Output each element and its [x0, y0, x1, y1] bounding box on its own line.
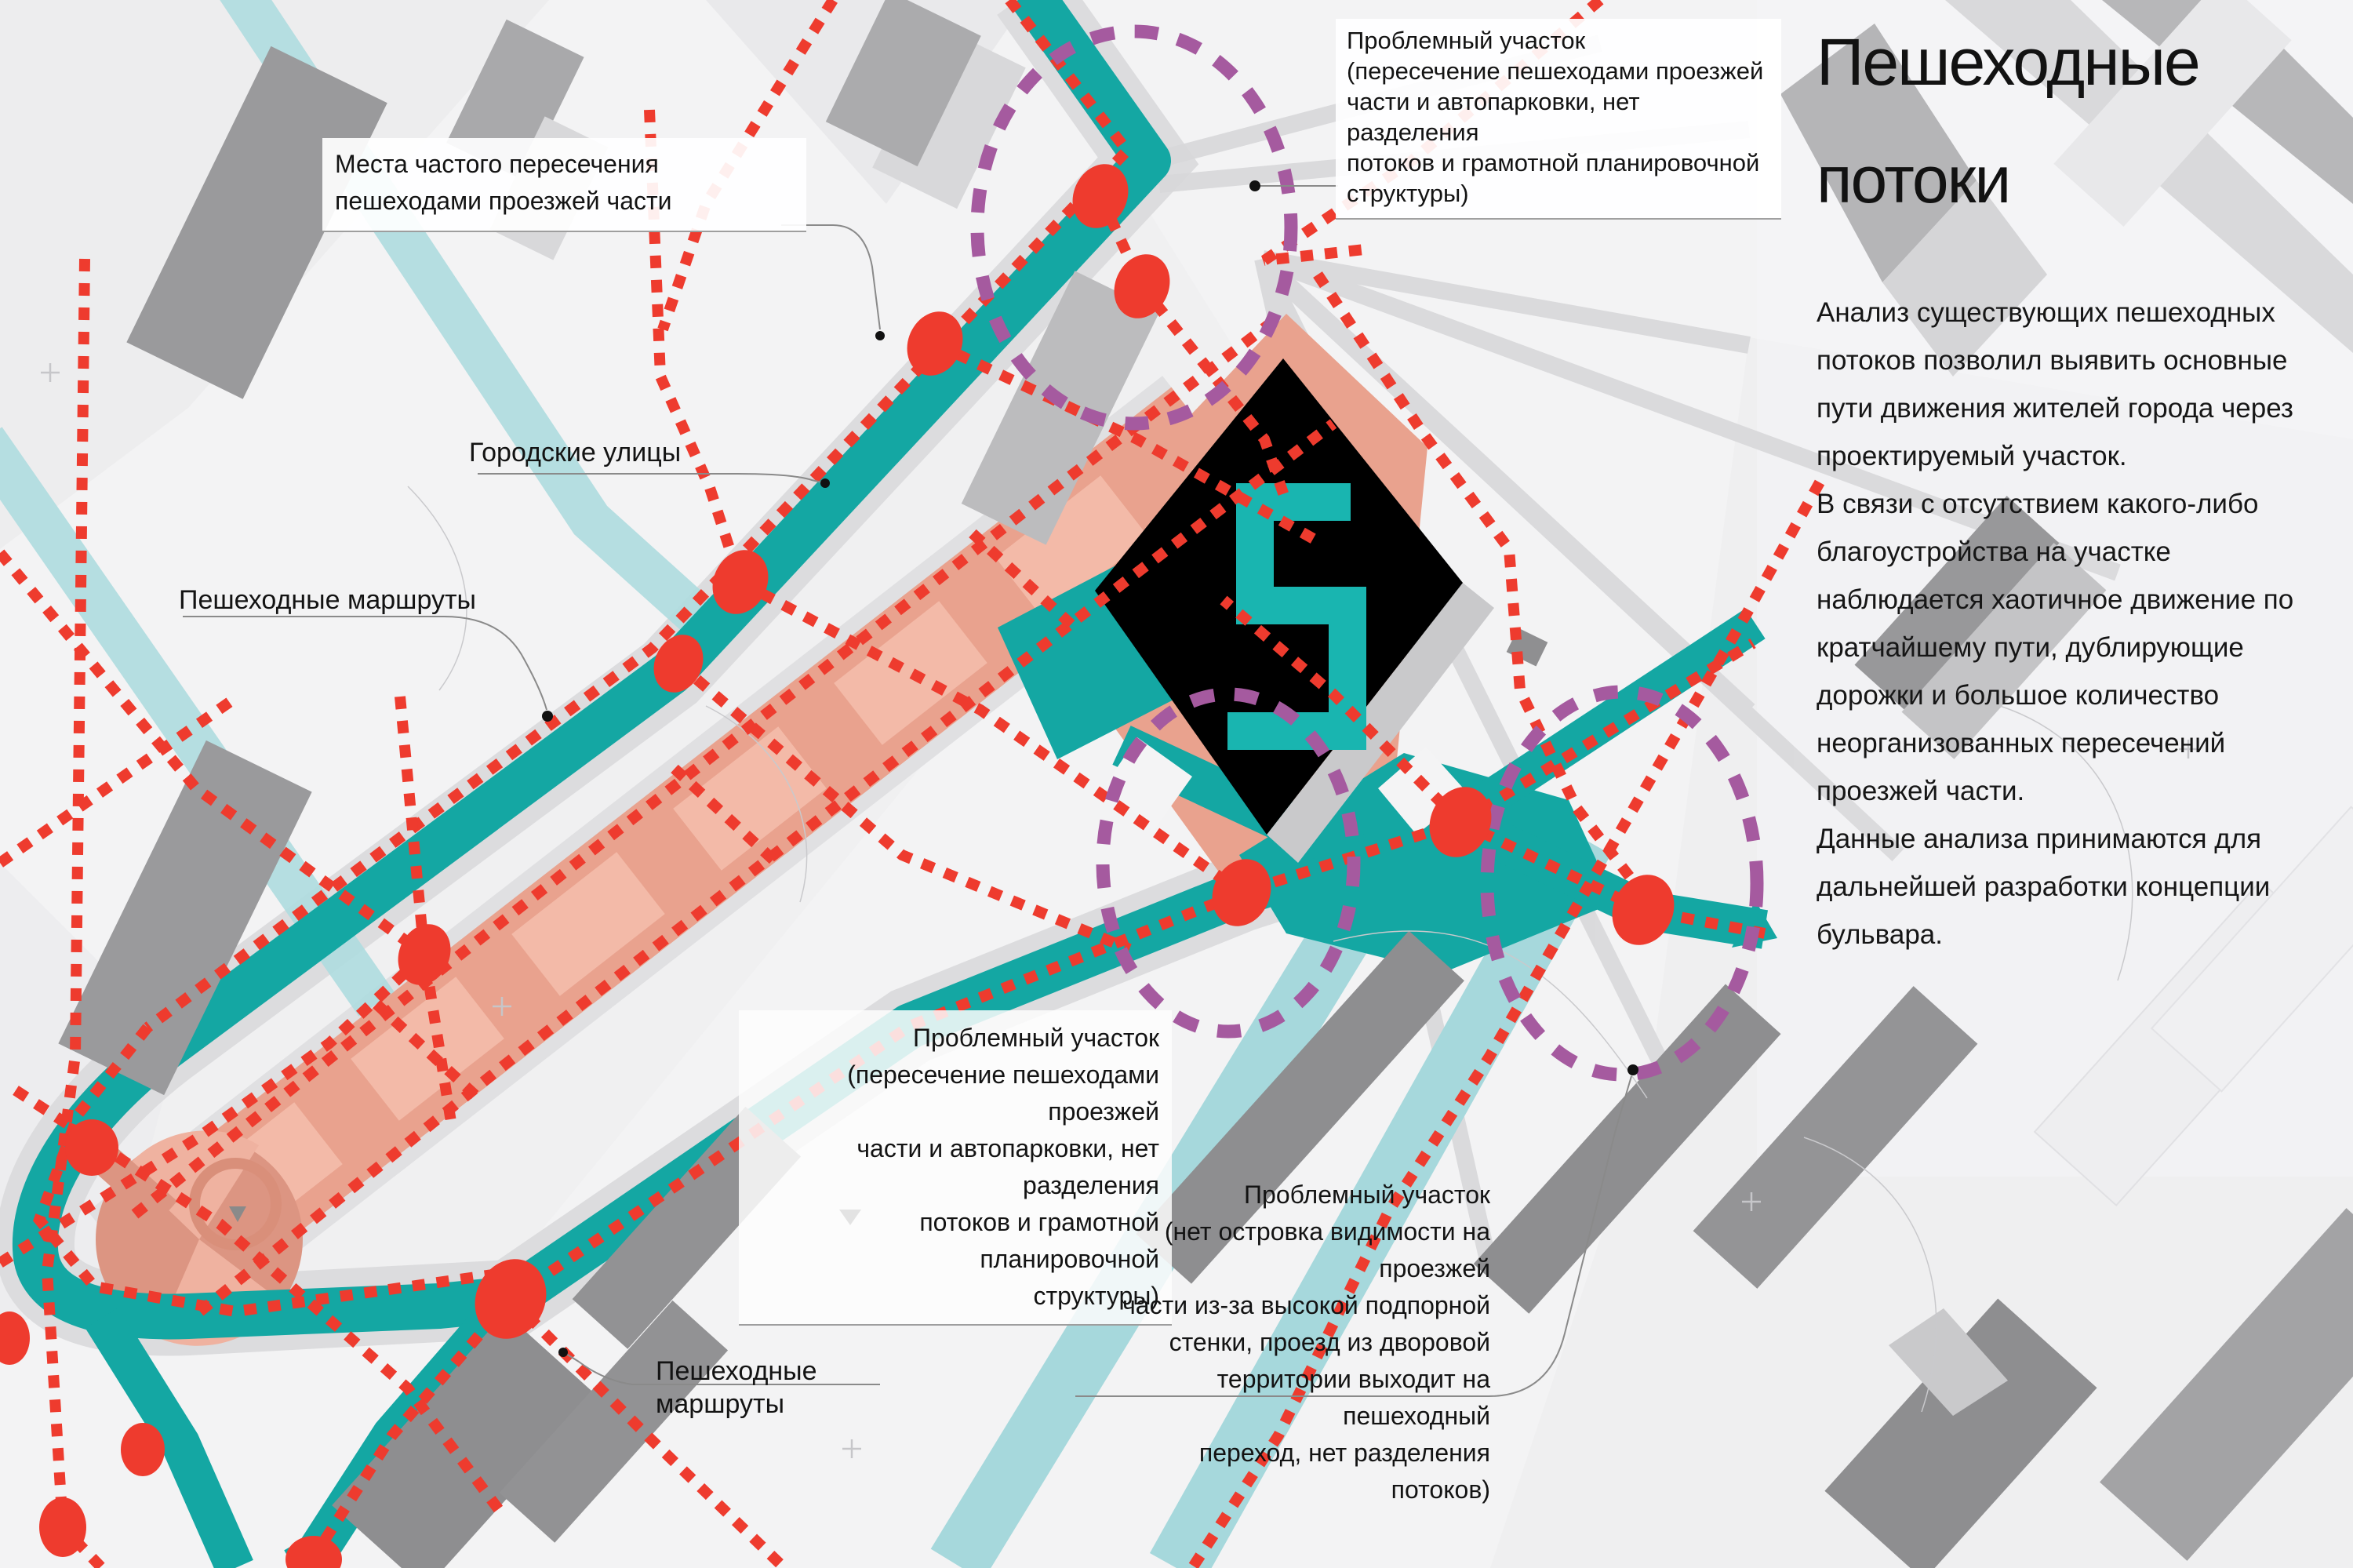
label-problem-area-bottom: Проблемный участок (нет островка видимос…: [1118, 1177, 1490, 1508]
page-title-line1: Пешеходные: [1817, 3, 2342, 121]
label-problem-area-middle: Проблемный участок (пересечение пешехода…: [739, 1010, 1172, 1326]
label-pedestrian-routes-lower: Пешеходные маршруты: [656, 1355, 922, 1421]
page-title: Пешеходные потоки: [1817, 3, 2342, 238]
page-title-line2: потоки: [1817, 121, 2342, 238]
analysis-paragraph-3: Данные анализа принимаются для дальнейше…: [1817, 815, 2344, 959]
analysis-paragraph-2: В связи с отсутствием какого-либо благоу…: [1817, 480, 2344, 815]
label-city-streets: Городские улицы: [469, 436, 751, 469]
label-frequent-crossings: Места частого пересечения пешеходами про…: [322, 138, 806, 232]
label-pedestrian-routes-upper: Пешеходные маршруты: [179, 584, 508, 617]
analysis-text: Анализ существующих пешеходных потоков п…: [1817, 289, 2344, 959]
label-problem-area-top: Проблемный участок (пересечение пешехода…: [1336, 19, 1781, 220]
analysis-paragraph-1: Анализ существующих пешеходных потоков п…: [1817, 289, 2344, 480]
pedestrian-flows-slide: Пешеходные потоки Анализ существующих пе…: [0, 0, 2353, 1568]
